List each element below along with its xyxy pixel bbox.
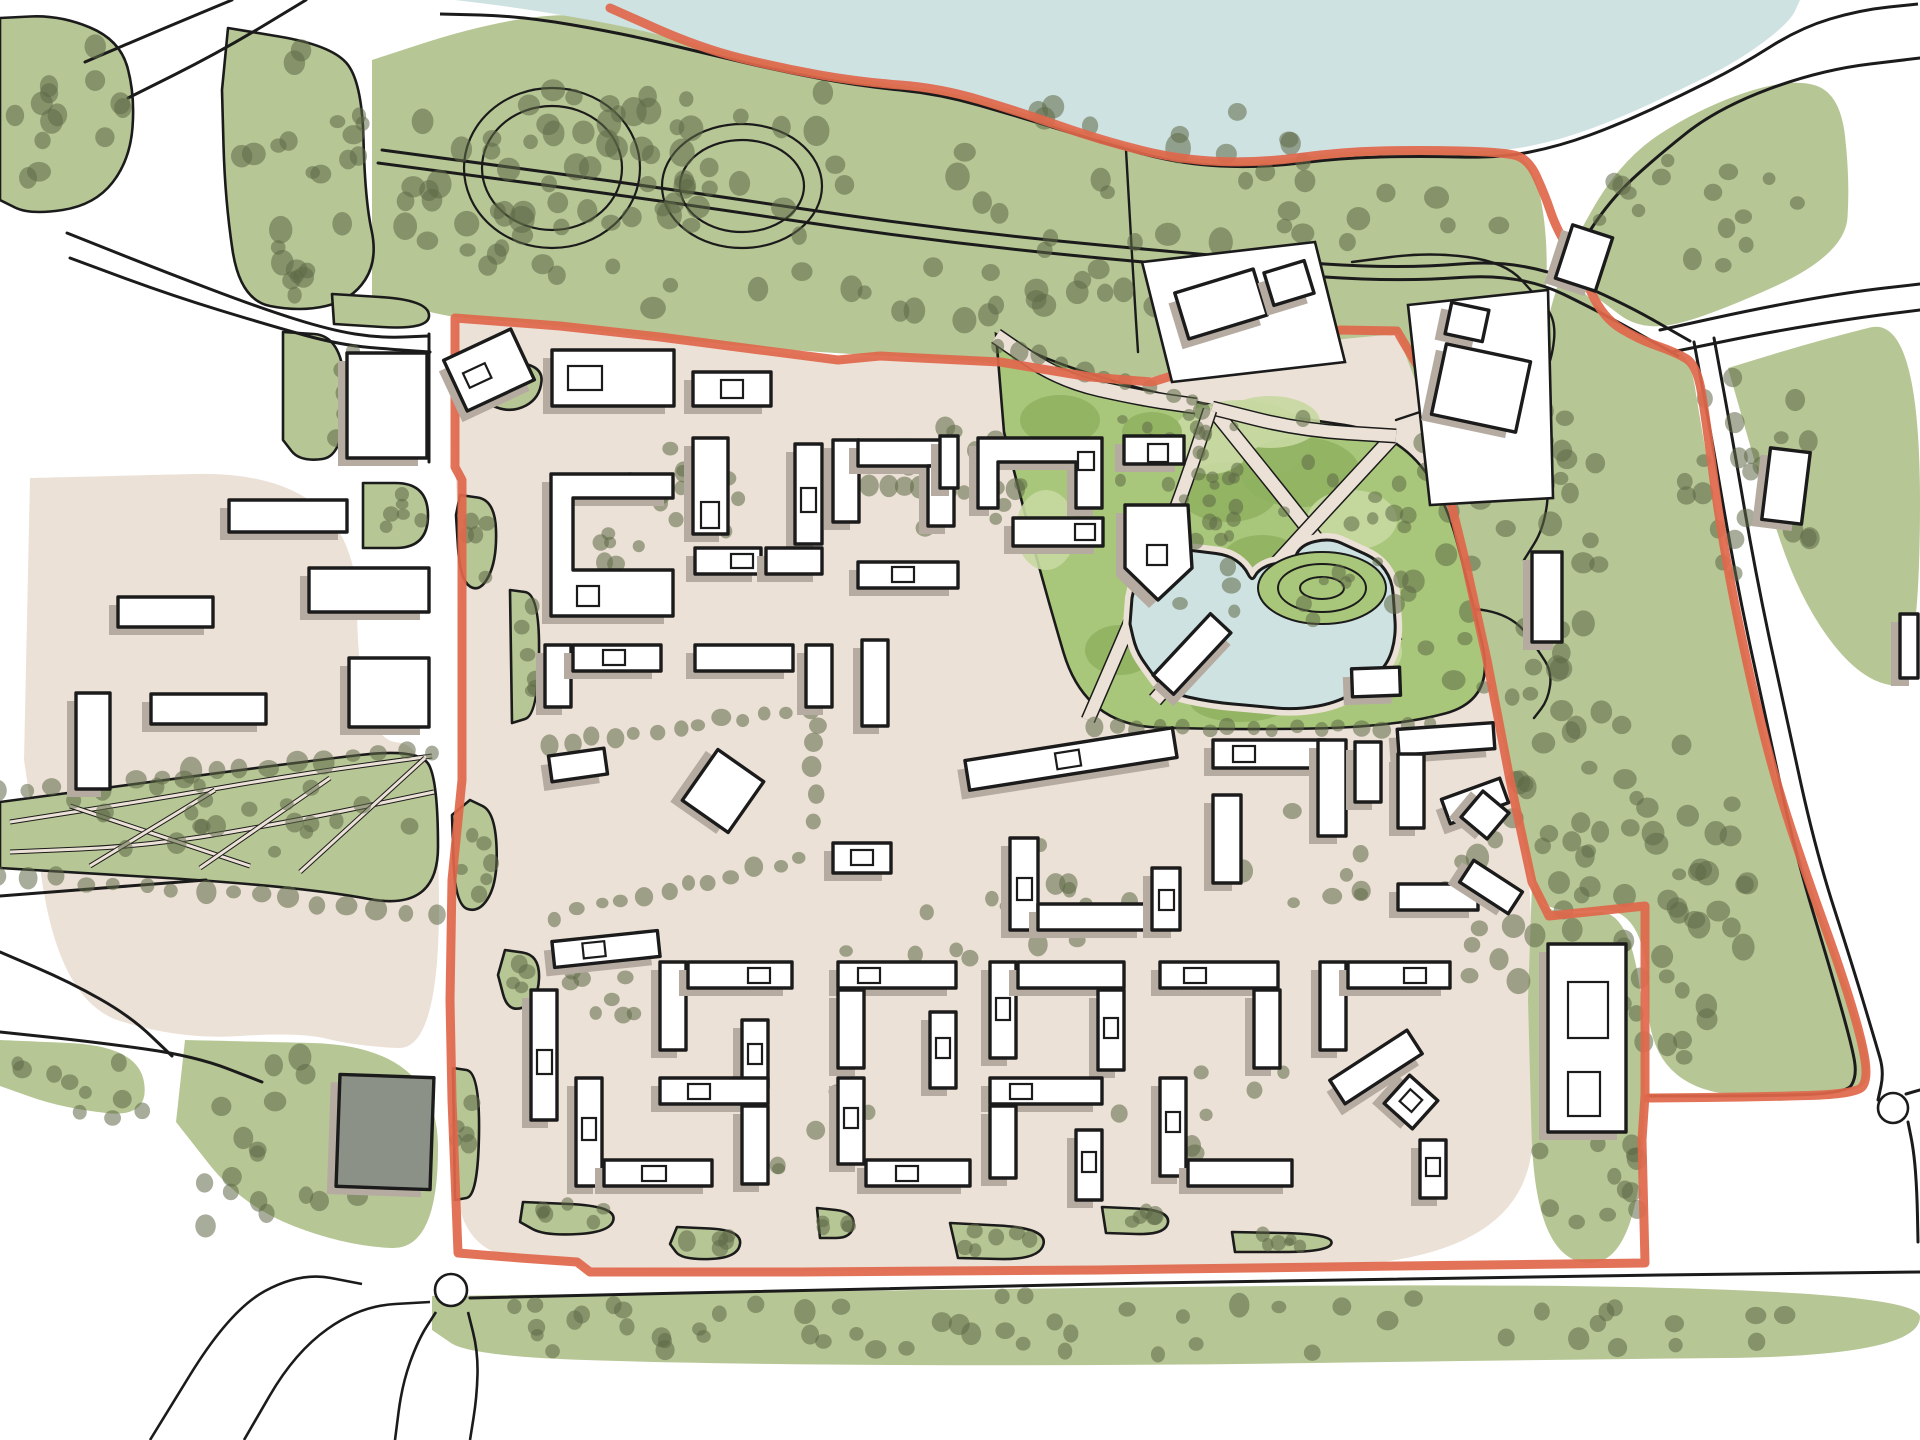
building-window [801,488,816,512]
building-window [582,941,605,958]
building [853,640,888,734]
building [67,693,110,797]
building [1204,740,1325,776]
building-window [582,1118,596,1140]
building-window [1166,1112,1180,1132]
building-window [1159,890,1174,910]
building [595,1160,712,1194]
building-window [688,1084,710,1099]
building [220,500,347,540]
building-window [1426,1158,1440,1176]
building-window [1233,746,1255,762]
building [1346,742,1381,810]
building [686,548,761,582]
roundabout-circle [1878,1093,1908,1123]
building [564,645,661,679]
building-window [1010,1084,1032,1099]
building-window [731,554,753,568]
building [338,353,427,466]
building-window [537,1050,552,1074]
building [797,645,832,715]
building [340,658,429,735]
building-window [1055,750,1081,770]
building-window [701,502,719,528]
building [829,990,864,1076]
building [109,597,213,635]
building-window [1404,968,1426,983]
building-window [748,968,770,983]
building-window [748,1044,762,1064]
building [829,1078,864,1172]
building [921,1012,956,1096]
building [1891,614,1918,686]
roundabout-circle [435,1274,467,1306]
building [1523,552,1562,650]
building [1004,518,1103,554]
building-window [1104,1018,1118,1038]
building [543,350,674,414]
building [300,568,429,620]
building [931,436,958,496]
building [857,1160,970,1194]
green-area [432,1285,1920,1365]
building [686,645,793,679]
building [1115,436,1184,472]
masterplan-stage [0,0,1920,1440]
building [1339,962,1450,996]
building-window [721,380,743,398]
building-window [603,650,625,665]
building [684,372,771,414]
building-window [642,1166,666,1181]
building [1067,1130,1102,1208]
building [733,1106,768,1192]
building [1089,990,1124,1078]
building-window [1568,982,1608,1038]
building-window [844,1108,858,1128]
building-window [1148,444,1168,462]
building [1539,944,1626,1140]
building [849,562,958,596]
building [1309,740,1346,844]
building-window [936,1038,950,1058]
masterplan-map [0,0,1920,1440]
building-window [568,366,602,390]
building [142,694,266,732]
building-window [996,998,1010,1020]
building-window [851,850,873,865]
building [981,1106,1016,1186]
building [1143,868,1180,938]
building [757,548,822,582]
building [679,962,792,996]
building [824,843,891,881]
building-window [896,1166,918,1181]
building [522,990,557,1128]
building-window [1075,524,1095,540]
building-window [1082,1152,1096,1172]
building-window [858,968,880,983]
building-window [1017,878,1032,900]
building-window [892,567,914,582]
building [684,438,728,542]
building [1389,754,1424,836]
building-window [1568,1072,1600,1116]
building [786,444,822,552]
building [1411,1140,1446,1206]
utility-building [327,1074,434,1198]
building [1029,904,1146,938]
building [1752,447,1810,532]
building-window [1184,968,1206,983]
building [1179,1160,1292,1194]
building [1245,990,1280,1076]
building [1204,795,1241,891]
